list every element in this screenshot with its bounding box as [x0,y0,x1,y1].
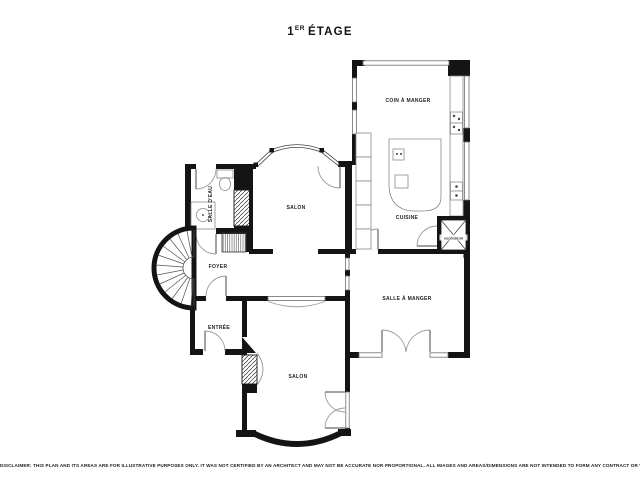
bay-window-icon [254,146,344,167]
label-cuisine: CUISINE [396,215,419,221]
label-coin-a-manger: COIN À MANGER [385,97,430,104]
label-salle-a-manger: SALLE À MANGER [382,295,431,302]
label-salle-deau: SALLE D'EAU [208,186,214,223]
chimney-hatched [234,190,250,226]
toilet-icon [217,170,233,178]
label-foyer: FOYER [209,264,228,270]
spiral-staircase-icon [154,228,194,308]
closet-shelving [222,233,246,252]
floor-plan-page: { "title": { "num": "1", "sup": "ER", "r… [0,0,640,480]
label-salon-middle: SALON [287,205,306,211]
cooktop-icon [451,112,463,134]
kitchen-island-icon [389,139,441,211]
kitchen-sink-icon [451,182,463,200]
disclaimer-text: DISCLAIMER: THIS PLAN AND ITS AREAS ARE … [0,463,640,468]
label-ascenseur: ASCENSEUR [444,237,464,241]
label-salon-bottom: SALON [289,374,308,380]
label-entree: ENTRÉE [208,323,230,331]
floor-plan-svg: COIN À MANGER CUISINE ASCENSEUR SALON SA… [0,0,640,480]
elevator-icon [437,216,470,254]
arch-opening-icon [268,296,325,306]
fireplace-icon [242,353,263,385]
